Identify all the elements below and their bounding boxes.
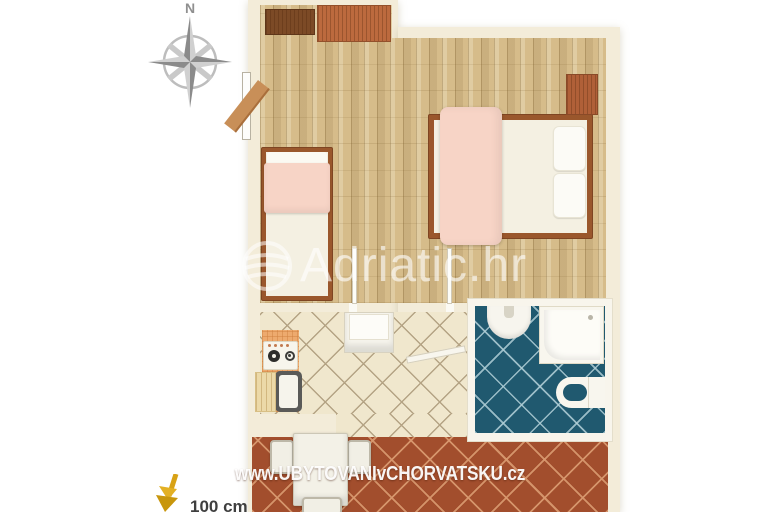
bottom-url-watermark: www.UBYTOVANIvCHORVATSKU.cz [235,463,525,486]
stove-knob [268,344,271,347]
toilet-tank [588,377,605,408]
bathroom-sink-tap [504,306,514,318]
stove-burner-center [288,354,291,357]
kitchen-sink-basin [279,375,298,408]
compass-rose-icon [148,6,234,110]
stove-knob [274,344,277,347]
wardrobe-dark [265,9,315,35]
floorplan-page: N Adriatic.hr www.UBYTOVANIvCHORVATSKU.c… [0,0,768,512]
wardrobe-red [317,5,391,42]
toilet-bowl-opening [563,384,587,401]
stove-burner-center [272,354,276,358]
stove-knob [280,344,283,347]
single-bed-blanket [264,163,330,213]
stove-knob [286,344,289,347]
scale-arrow-icon [152,474,188,512]
double-door-leaf [352,248,357,304]
nightstand [566,74,598,115]
double-bed-pillow [553,173,586,218]
counter-board [255,372,276,412]
kitchen-table-top [349,314,389,340]
double-door-leaf [447,248,452,304]
double-bed-blanket [440,107,502,245]
terrace-chair [302,497,342,512]
shower-drain [588,315,593,320]
scale-label: 100 cm [190,497,248,512]
double-bed-pillow [553,126,586,171]
kitchen-doorway-floor [336,414,467,437]
